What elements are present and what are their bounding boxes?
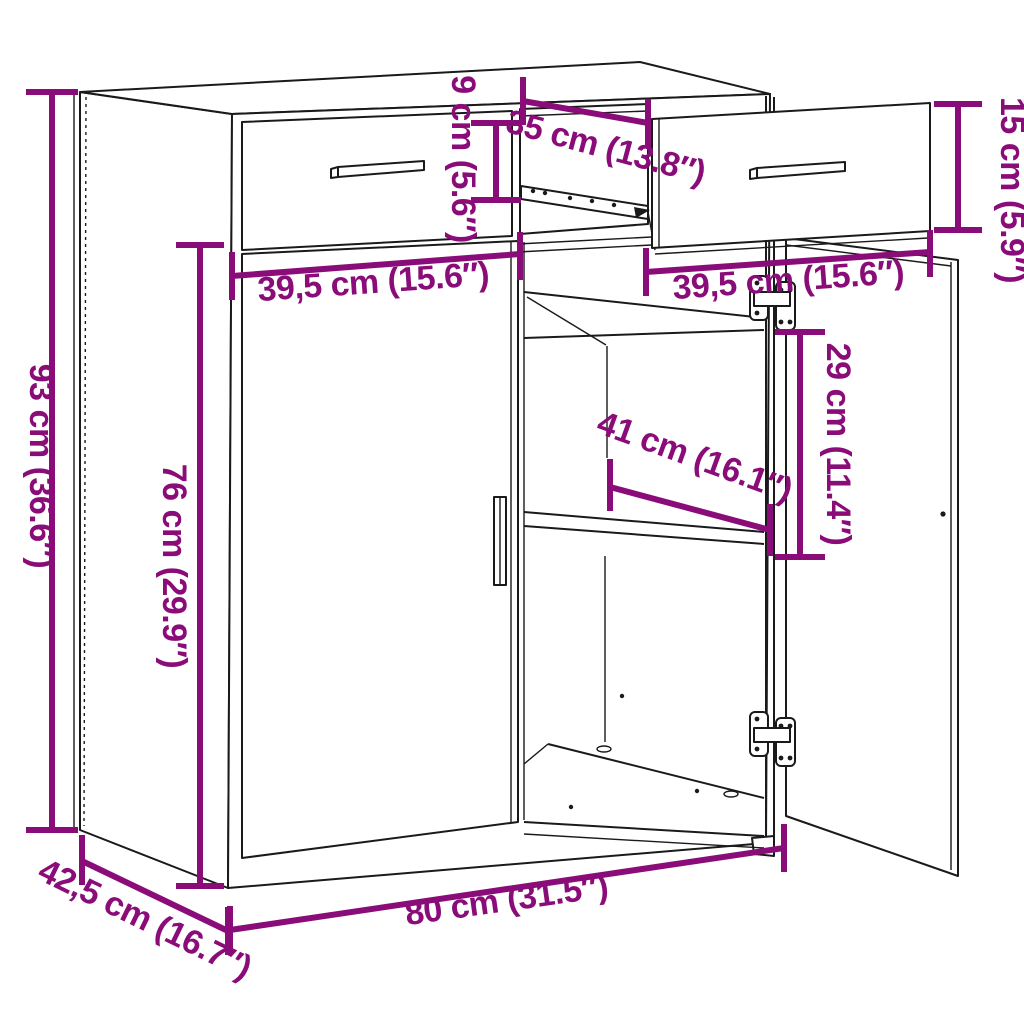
pin-hole [569, 805, 573, 809]
dim-label-door-height: 76 cm (29.9″) [155, 464, 193, 668]
dim-label-shelf-spacing: 29 cm (11.4″) [819, 343, 857, 546]
pin-hole [695, 789, 699, 793]
handle-hole [940, 511, 945, 516]
left-door [242, 241, 518, 858]
dim-label-total-height: 93 cm (36.6″) [22, 364, 60, 568]
pin-hole [620, 694, 624, 698]
dim-total-height: 93 cm (36.6″) [22, 92, 78, 830]
dim-drawer-front-height: 15 cm (5.9″) [934, 97, 1024, 283]
door-handle [494, 497, 506, 585]
diagram-page: 93 cm (36.6″) 76 cm (29.9″) 9 cm (5.6″) … [0, 0, 1024, 1024]
furniture-diagram: 93 cm (36.6″) 76 cm (29.9″) 9 cm (5.6″) … [0, 0, 1024, 1024]
dim-label-drawer-inner-height: 9 cm (5.6″) [444, 75, 482, 243]
dim-label-drawer-front-height: 15 cm (5.9″) [993, 97, 1024, 283]
dim-label-total-width: 80 cm (31.5″) [403, 867, 611, 933]
